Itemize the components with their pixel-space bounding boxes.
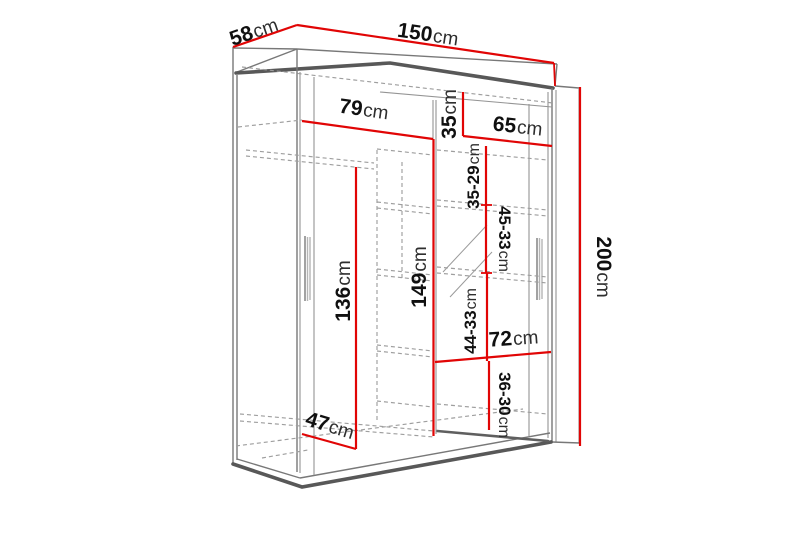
dimension-lines (233, 25, 580, 449)
right-door-handle-icon (537, 238, 542, 300)
range-36-30-label: 36-30cm (495, 372, 514, 438)
wardrobe-dimension-diagram: 58cm 150cm 200cm 79cm 35cm 65cm 35-29cm … (0, 0, 800, 533)
range-35-29-label: 35-29cm (464, 143, 483, 209)
wardrobe-outline (233, 47, 580, 487)
left-door-handle-icon (305, 236, 310, 301)
height-35-label: 35cm (438, 89, 461, 139)
width-79-label: 79cm (338, 95, 390, 125)
mirror-hatch-icon (443, 225, 492, 297)
height-200-label: 200cm (592, 236, 615, 297)
depth-47-label: 47cm (303, 408, 357, 445)
height-136-label: 136cm (332, 260, 355, 321)
range-45-33-label: 45-33cm (495, 206, 514, 272)
dimension-labels: 58cm 150cm 200cm 79cm 35cm 65cm 35-29cm … (227, 13, 615, 444)
width-72-label: 72cm (488, 325, 539, 351)
height-149-label: 149cm (408, 246, 431, 307)
range-44-33-label: 44-33cm (461, 288, 480, 354)
width-150-label: 150cm (396, 19, 460, 51)
diagram-canvas: 58cm 150cm 200cm 79cm 35cm 65cm 35-29cm … (0, 0, 800, 533)
width-65-label: 65cm (492, 113, 544, 141)
depth-58-label: 58cm (227, 13, 281, 51)
